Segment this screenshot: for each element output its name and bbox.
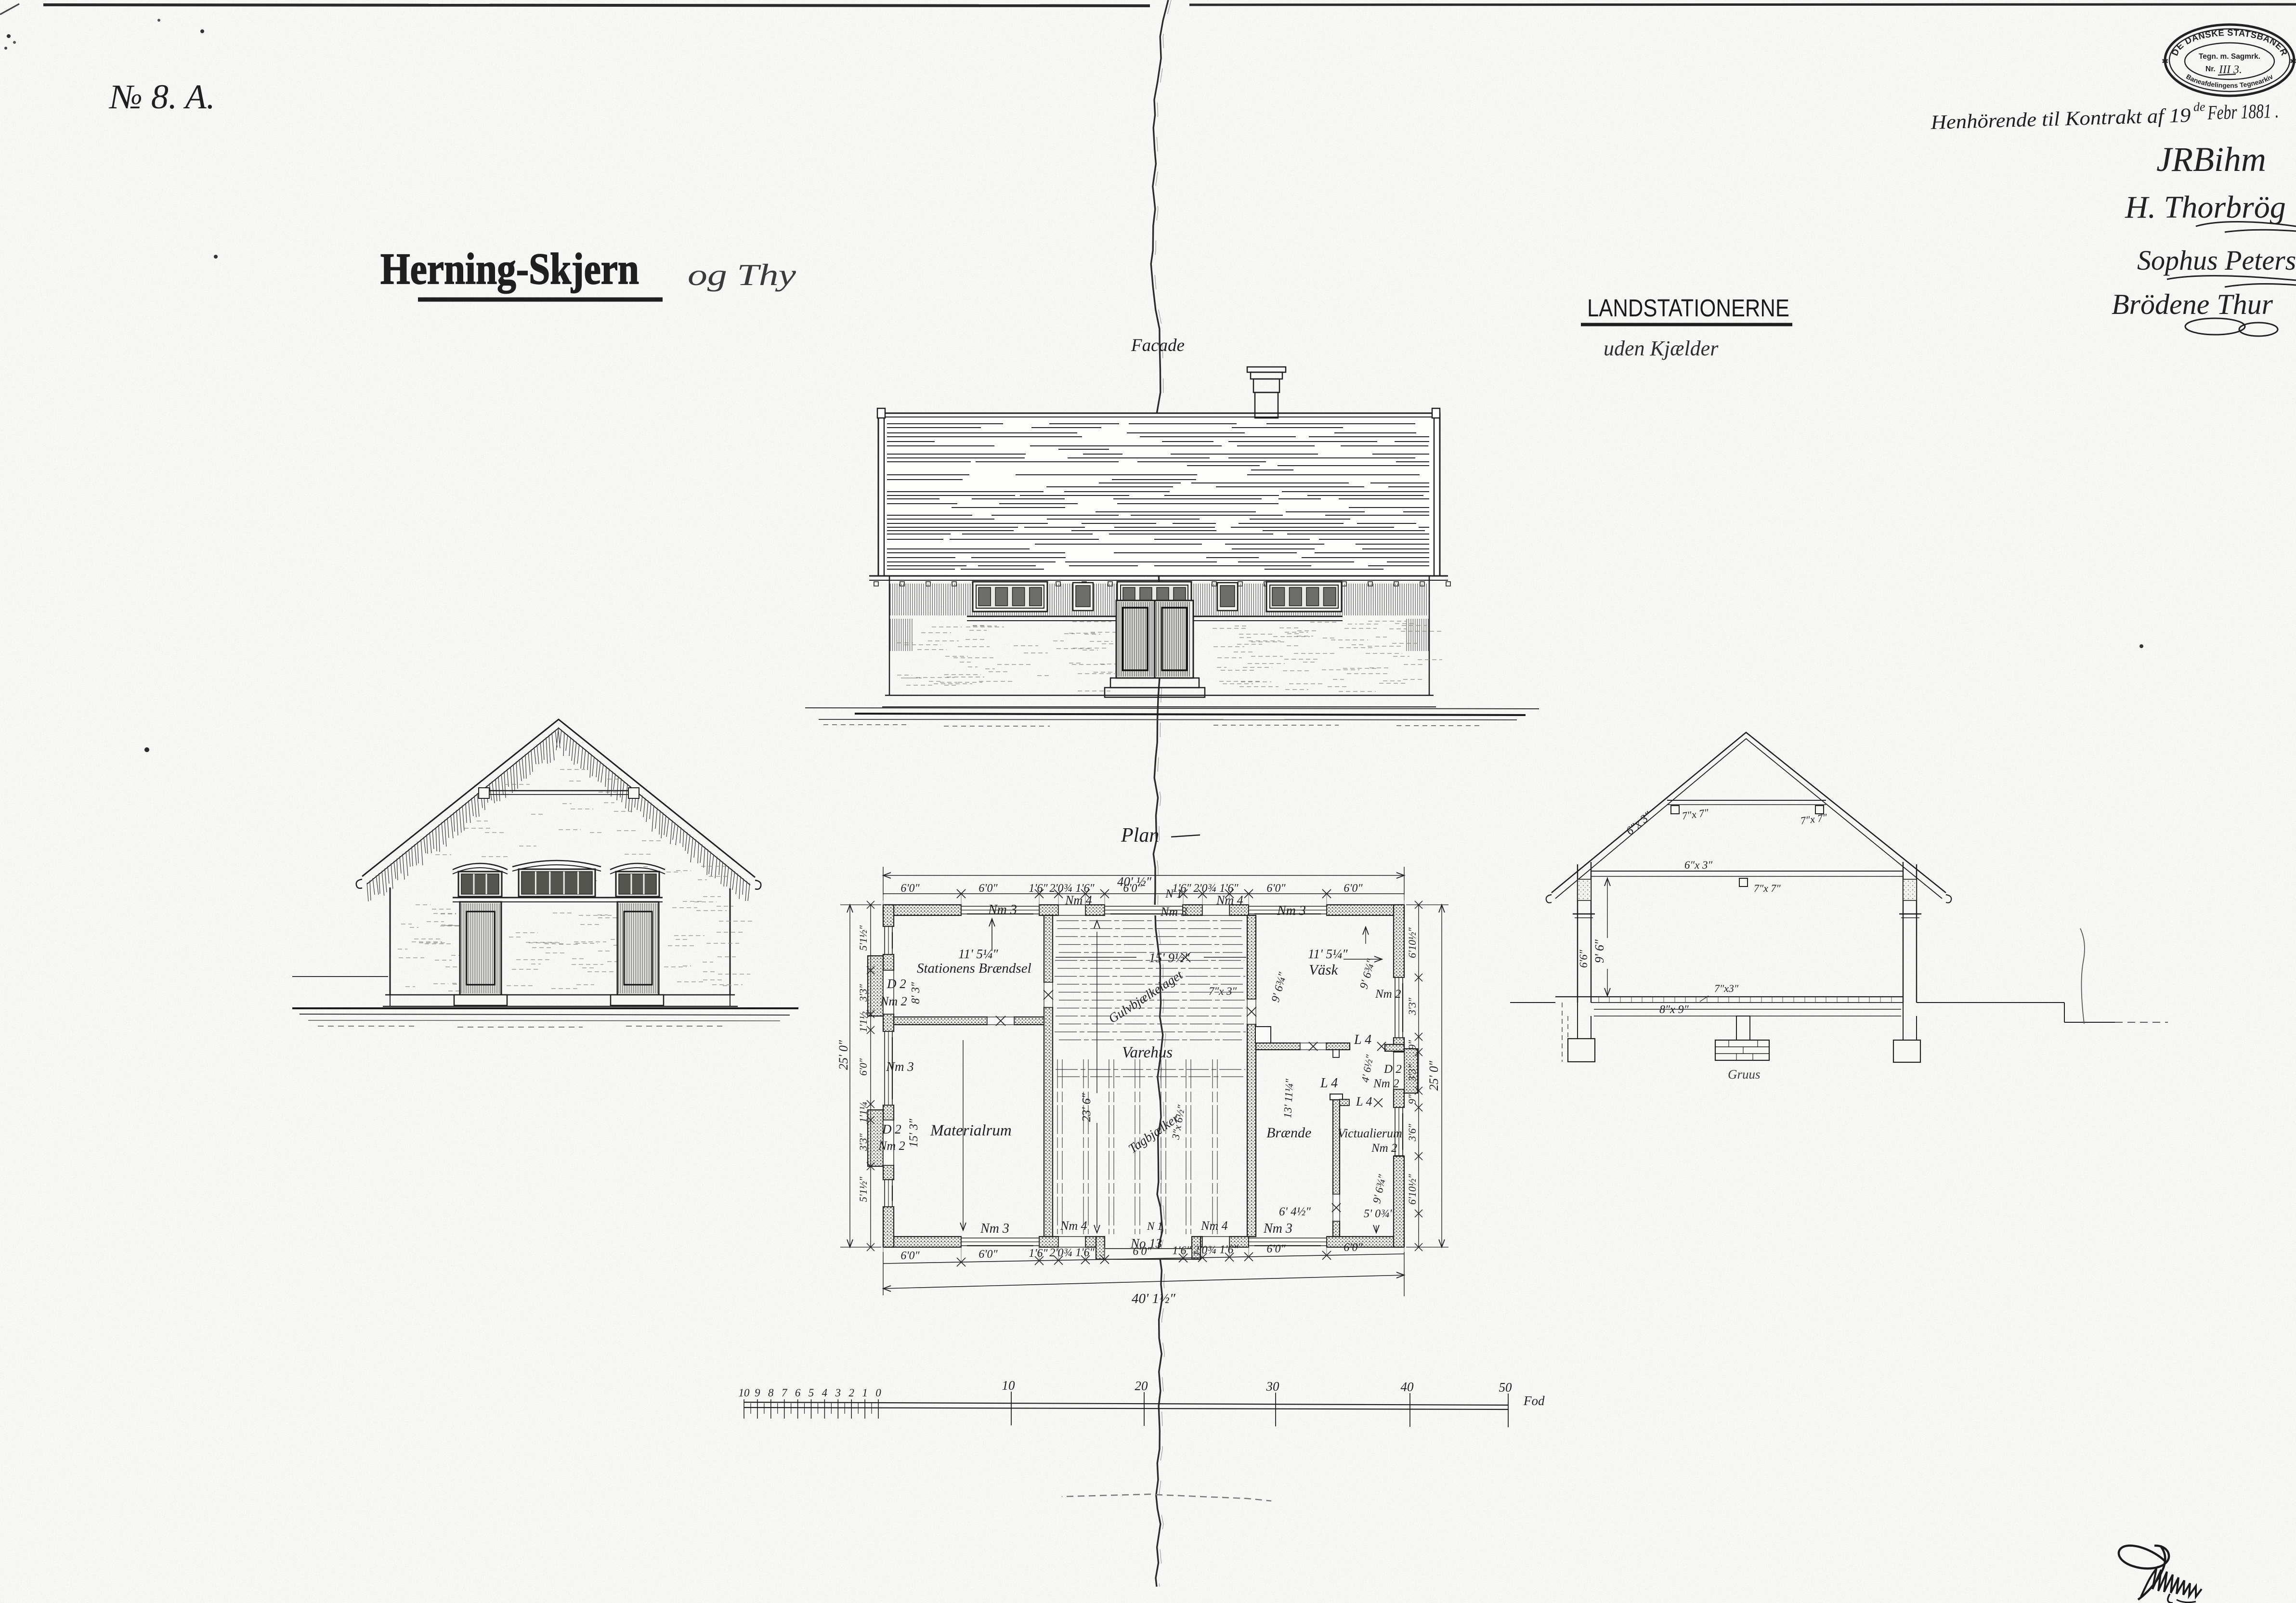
svg-text:Nm 4: Nm 4 xyxy=(1060,1219,1087,1233)
svg-text:8″x 9″: 8″x 9″ xyxy=(1659,1004,1689,1016)
svg-text:6'10½″: 6'10½″ xyxy=(1406,927,1418,958)
svg-text:JRBihm: JRBihm xyxy=(2156,140,2266,179)
svg-text:5'1½″: 5'1½″ xyxy=(857,925,869,951)
svg-text:Herning-Skjern: Herning-Skjern xyxy=(380,244,639,293)
svg-text:7: 7 xyxy=(782,1387,788,1399)
svg-text:6'0″: 6'0″ xyxy=(1266,1243,1286,1255)
svg-text:✱: ✱ xyxy=(2162,57,2168,66)
svg-text:Plan: Plan xyxy=(1121,824,1159,847)
svg-text:15' 9½″: 15' 9½″ xyxy=(1149,951,1190,965)
svg-text:6' 4½″: 6' 4½″ xyxy=(1279,1205,1311,1218)
svg-text:Tegn. m. Sagmrk.: Tegn. m. Sagmrk. xyxy=(2199,52,2260,61)
svg-text:D 2: D 2 xyxy=(887,977,906,991)
svg-text:6'0″: 6'0″ xyxy=(978,882,998,895)
svg-text:Sophus Peterse: Sophus Peterse xyxy=(2137,245,2296,276)
svg-text:Nm 3: Nm 3 xyxy=(1277,903,1306,918)
svg-text:Nm 4: Nm 4 xyxy=(1065,893,1092,907)
svg-text:Nm 3: Nm 3 xyxy=(1160,905,1187,919)
svg-text:6'0″: 6'0″ xyxy=(978,1248,998,1261)
svg-text:Nm 2: Nm 2 xyxy=(878,1139,905,1153)
svg-text:Nm 3: Nm 3 xyxy=(886,1059,914,1074)
svg-text:0: 0 xyxy=(875,1387,881,1399)
svg-text:9: 9 xyxy=(755,1387,760,1399)
svg-text:3: 3 xyxy=(835,1387,841,1399)
svg-text:H. Thorbrög: H. Thorbrög xyxy=(2125,190,2286,225)
svg-text:Nm 2: Nm 2 xyxy=(1373,1077,1399,1090)
svg-text:13' 11¼″: 13' 11¼″ xyxy=(1281,1078,1295,1118)
svg-text:6'0″: 6'0″ xyxy=(1344,882,1363,895)
svg-text:6'0″: 6'0″ xyxy=(900,1250,920,1262)
svg-text:og Thy: og Thy xyxy=(688,258,796,292)
svg-text:9″: 9″ xyxy=(1406,1094,1418,1104)
svg-text:2'0¾: 2'0¾ xyxy=(1049,882,1072,895)
svg-text:Väsk: Väsk xyxy=(1309,961,1339,978)
svg-text:6'10½″: 6'10½″ xyxy=(1406,1173,1418,1204)
svg-text:N 1: N 1 xyxy=(1147,1220,1163,1232)
svg-text:L 4: L 4 xyxy=(1354,1032,1371,1047)
svg-text:Varehus: Varehus xyxy=(1122,1044,1173,1061)
svg-text:№ 8. A.: № 8. A. xyxy=(108,78,215,116)
svg-text:5: 5 xyxy=(809,1387,814,1399)
svg-text:1'6″: 1'6″ xyxy=(1172,882,1191,895)
svg-text:1: 1 xyxy=(862,1387,868,1399)
svg-text:L 4: L 4 xyxy=(1356,1095,1372,1108)
svg-text:D 2: D 2 xyxy=(882,1122,901,1136)
svg-text:4: 4 xyxy=(822,1387,828,1399)
svg-text:25' 0″: 25' 0″ xyxy=(836,1040,850,1070)
svg-text:6'0″: 6'0″ xyxy=(857,1058,869,1076)
svg-text:9″: 9″ xyxy=(1406,1040,1418,1050)
svg-text:Gruus: Gruus xyxy=(1728,1067,1761,1082)
svg-text:6'6″: 6'6″ xyxy=(1578,950,1590,968)
svg-text:50: 50 xyxy=(1499,1380,1513,1394)
svg-text:Nm 2: Nm 2 xyxy=(1371,1142,1397,1155)
svg-text:uden Kjælder: uden Kjælder xyxy=(1604,337,1719,360)
svg-text:1'6″: 1'6″ xyxy=(1172,1245,1191,1257)
svg-text:3'3″: 3'3″ xyxy=(1406,997,1418,1016)
svg-text:Materialrum: Materialrum xyxy=(930,1122,1012,1139)
svg-text:3'6″: 3'6″ xyxy=(1406,1123,1418,1142)
svg-text:Nm 2: Nm 2 xyxy=(1375,988,1401,1001)
svg-text:2'0¾: 2'0¾ xyxy=(1193,1244,1216,1257)
svg-text:de: de xyxy=(2193,100,2205,114)
svg-text:3'3″: 3'3″ xyxy=(1406,1064,1418,1082)
svg-text:10: 10 xyxy=(739,1387,750,1399)
svg-text:7″x 7″: 7″x 7″ xyxy=(1754,882,1781,894)
svg-text:7″x3″: 7″x3″ xyxy=(1714,982,1739,994)
svg-text:Nm 3: Nm 3 xyxy=(980,1221,1009,1236)
svg-text:LANDSTATIONERNE: LANDSTATIONERNE xyxy=(1587,294,1789,322)
svg-text:6'0″: 6'0″ xyxy=(1344,1241,1363,1254)
svg-text:Brænde: Brænde xyxy=(1266,1125,1311,1141)
svg-text:1'1½: 1'1½ xyxy=(857,1011,869,1032)
svg-text:1'6″: 1'6″ xyxy=(1075,882,1095,895)
svg-text:2: 2 xyxy=(848,1387,854,1399)
svg-text:Nm 3: Nm 3 xyxy=(1263,1221,1292,1236)
svg-text:6'0″: 6'0″ xyxy=(900,882,920,895)
svg-text:Victualierum: Victualierum xyxy=(1338,1126,1402,1140)
svg-text:1'6″: 1'6″ xyxy=(1029,1247,1048,1260)
svg-text:Brödene Thur: Brödene Thur xyxy=(2112,288,2273,320)
svg-text:Nm 3: Nm 3 xyxy=(988,902,1017,917)
svg-text:11' 5¼″: 11' 5¼″ xyxy=(1308,947,1348,961)
svg-text:7″x 3″: 7″x 3″ xyxy=(1209,985,1237,997)
svg-text:Nr.: Nr. xyxy=(2205,65,2216,73)
svg-text:3'3″: 3'3″ xyxy=(857,984,869,1002)
svg-text:Nm 4: Nm 4 xyxy=(1200,1219,1228,1233)
svg-text:40: 40 xyxy=(1401,1380,1414,1394)
svg-text:1'6″: 1'6″ xyxy=(1219,1244,1239,1256)
svg-text:20: 20 xyxy=(1135,1379,1148,1393)
svg-text:2'0¾: 2'0¾ xyxy=(1049,1247,1072,1259)
svg-text:6″x 3″: 6″x 3″ xyxy=(1684,859,1713,871)
svg-text:15' 3″: 15' 3″ xyxy=(907,1119,920,1147)
svg-text:10: 10 xyxy=(1002,1378,1016,1393)
svg-text:1'6″: 1'6″ xyxy=(1219,882,1239,895)
svg-text:25' 0″: 25' 0″ xyxy=(1427,1060,1441,1091)
svg-text:6'0″: 6'0″ xyxy=(1266,882,1286,895)
svg-text:30: 30 xyxy=(1266,1379,1280,1394)
svg-text:2'0¾: 2'0¾ xyxy=(1193,882,1216,895)
svg-text:6: 6 xyxy=(795,1387,801,1399)
svg-text:Febr 1881 .: Febr 1881 . xyxy=(2207,100,2279,124)
svg-text:Facade: Facade xyxy=(1131,336,1185,355)
svg-text:6'0″: 6'0″ xyxy=(1133,1245,1152,1258)
svg-text:6'0″: 6'0″ xyxy=(1123,882,1142,895)
svg-text:9' 6″: 9' 6″ xyxy=(1592,939,1606,963)
svg-text:1'6″: 1'6″ xyxy=(1029,882,1048,895)
svg-text:Stationens Brændsel: Stationens Brændsel xyxy=(917,961,1031,976)
svg-text:8: 8 xyxy=(768,1387,774,1399)
svg-text:3'3″: 3'3″ xyxy=(857,1133,869,1151)
svg-text:5'1½″: 5'1½″ xyxy=(857,1176,869,1202)
svg-text:8' 3″: 8' 3″ xyxy=(910,982,922,1004)
svg-text:L 4: L 4 xyxy=(1320,1076,1338,1091)
svg-text:Fod: Fod xyxy=(1523,1394,1545,1408)
svg-text:5' 0¾″: 5' 0¾″ xyxy=(1364,1208,1395,1220)
svg-text:Nm 2: Nm 2 xyxy=(880,994,907,1008)
svg-text:D 2: D 2 xyxy=(1383,1063,1402,1076)
svg-text:40' 1½″: 40' 1½″ xyxy=(1132,1291,1176,1306)
svg-text:1'1¼: 1'1¼ xyxy=(857,1102,869,1122)
svg-text:1'6″: 1'6″ xyxy=(1075,1246,1095,1259)
svg-text:✱: ✱ xyxy=(2290,57,2296,66)
svg-text:23' 6″: 23' 6″ xyxy=(1080,1093,1093,1122)
